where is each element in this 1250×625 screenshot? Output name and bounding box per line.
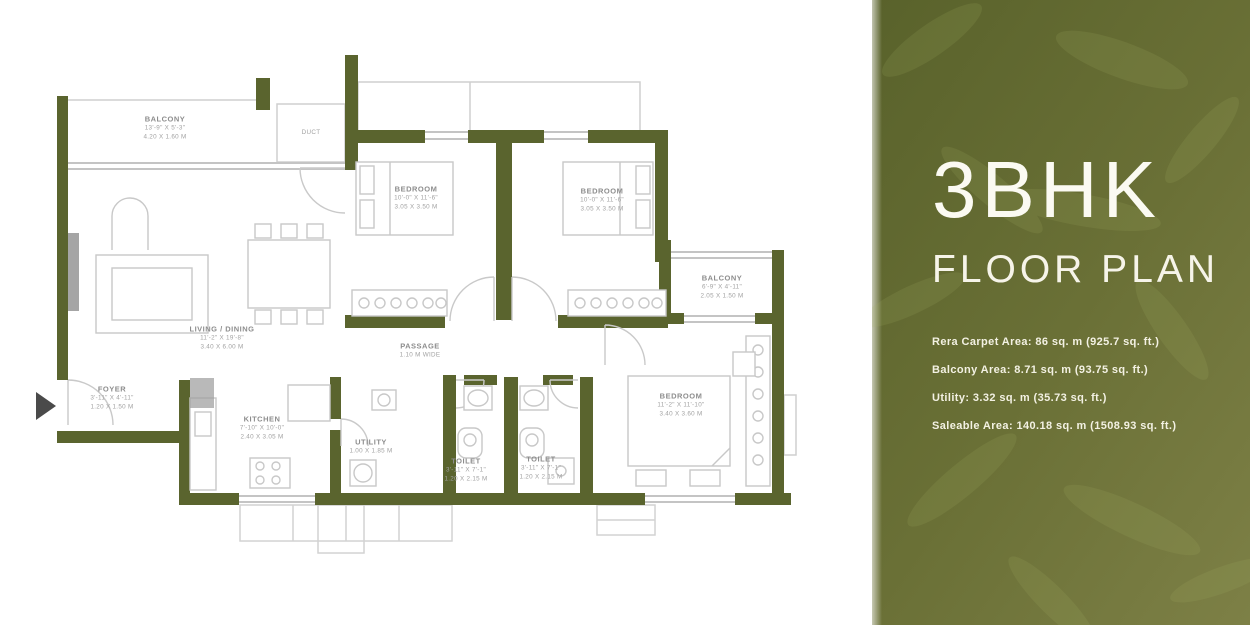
brand-panel: 3BHK FLOOR PLAN Rera Carpet Area: 86 sq.… <box>872 0 1250 625</box>
floor-plan-page: BALCONY 13'-9" X 5'-3" 4.20 X 1.60 M DUC… <box>0 0 1250 625</box>
entry-arrow-icon <box>36 392 56 420</box>
room-label-kitchen: KITCHEN 7'-10" X 10'-0" 2.40 X 3.05 M <box>240 414 284 441</box>
floor-plan: BALCONY 13'-9" X 5'-3" 4.20 X 1.60 M DUC… <box>0 0 875 625</box>
room-label-toilet-1: TOILET 3'-11" X 7'-1" 1.20 X 2.15 M <box>444 456 487 483</box>
room-label-utility: UTILITY 1.00 X 1.85 M <box>349 438 392 457</box>
area-detail-balcony: Balcony Area: 8.71 sq. m (93.75 sq. ft.) <box>932 364 1250 376</box>
area-detail-carpet: Rera Carpet Area: 86 sq. m (925.7 sq. ft… <box>932 336 1250 348</box>
sofa-inner <box>112 268 192 320</box>
area-details: Rera Carpet Area: 86 sq. m (925.7 sq. ft… <box>932 336 1250 432</box>
room-label-balcony-top: BALCONY 13'-9" X 5'-3" 4.20 X 1.60 M <box>143 114 186 141</box>
area-detail-saleable: Saleable Area: 140.18 sq. m (1508.93 sq.… <box>932 420 1250 432</box>
dining-table <box>248 240 330 308</box>
area-detail-utility: Utility: 3.32 sq. m (35.73 sq. ft.) <box>932 392 1250 404</box>
room-label-bedroom-1: BEDROOM 10'-0" X 11'-6" 3.05 X 3.50 M <box>394 184 438 211</box>
room-label-foyer: FOYER 3'-11" X 4'-11" 1.20 X 1.50 M <box>90 384 133 411</box>
hob <box>250 458 290 488</box>
bed-master <box>628 376 730 466</box>
arch-chair <box>112 198 148 250</box>
room-label-duct: DUCT <box>302 129 321 138</box>
page-subtitle: FLOOR PLAN <box>932 248 1250 292</box>
room-label-passage: PASSAGE 1.10 M WIDE <box>400 342 441 361</box>
room-label-living-dining: LIVING / DINING 11'-2" X 19'-8" 3.40 X 6… <box>189 324 254 351</box>
room-label-master-bedroom: BEDROOM 11'-2" X 11'-10" 3.40 X 3.60 M <box>657 391 704 418</box>
tv-unit <box>68 233 79 311</box>
steps <box>240 505 655 553</box>
fridge <box>288 385 330 421</box>
room-label-bedroom-2: BEDROOM 10'-0" X 11'-6" 3.05 X 3.50 M <box>580 186 624 213</box>
page-title: 3BHK <box>932 150 1250 230</box>
room-label-toilet-2: TOILET 3'-11" X 7'-1" 1.20 X 2.15 M <box>519 454 562 481</box>
room-label-balcony-right: BALCONY 6'-9" X 4'-11" 2.05 X 1.50 M <box>700 273 743 300</box>
floor-plan-svg <box>0 0 875 625</box>
